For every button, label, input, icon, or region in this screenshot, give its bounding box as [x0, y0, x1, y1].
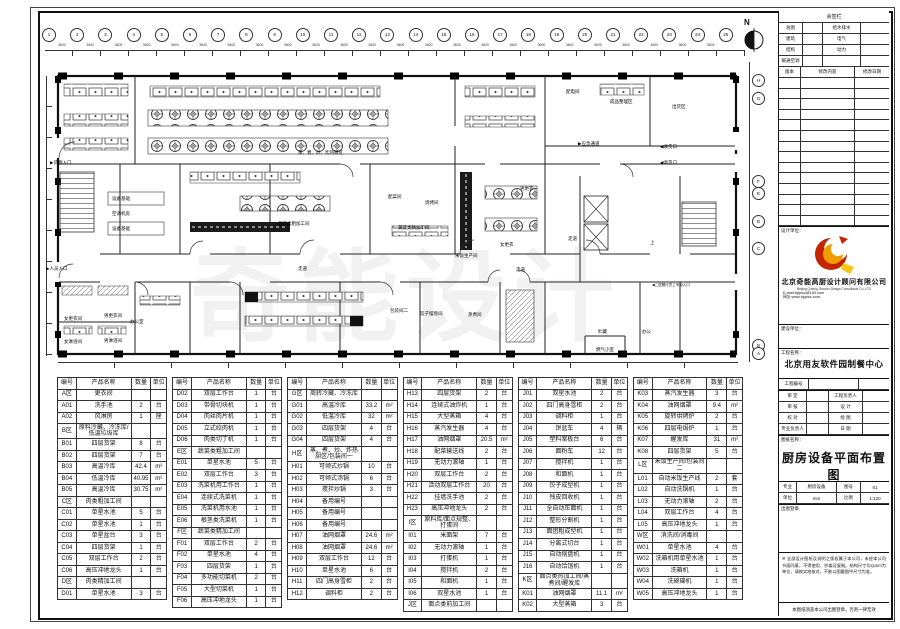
equipment-row: F05大型切菜机1台	[173, 585, 282, 597]
equipment-cell: H21	[403, 481, 422, 493]
drawing-title-label: 图纸名称：	[779, 436, 889, 443]
equipment-cell: 台	[381, 473, 397, 485]
equipment-cell	[151, 424, 167, 439]
equipment-cell: 31	[707, 435, 727, 447]
equipment-cell	[496, 600, 512, 612]
equipment-row: F01双层工作台2台	[173, 539, 282, 551]
room-label: 女更衣	[500, 242, 514, 248]
equipment-row: J15自动摆盘机1台	[518, 550, 627, 562]
equipment-cell: L04	[633, 508, 652, 520]
equipment-row: H03搅拌炒锅3台	[288, 485, 397, 497]
column-header: 产品名称	[652, 378, 707, 390]
equipment-cell: 风淋房	[76, 412, 131, 424]
titleblock-cell	[855, 131, 889, 142]
room-label: 男更衣	[520, 186, 534, 192]
titleblock-cell	[823, 56, 861, 67]
equipment-row: D04肉丝肉片机1台	[173, 412, 282, 424]
signature-rows: 总图给水排水建筑电气结构动力暖通空调	[779, 23, 889, 67]
equipment-cell: 1	[707, 485, 727, 497]
equipment-row: D02双层工作台1台	[173, 389, 282, 401]
equipment-cell: J07	[518, 458, 537, 470]
equipment-cell: 低温冷库	[307, 412, 362, 424]
titleblock-cell	[779, 110, 801, 121]
equipment-cell: 四层货架	[307, 424, 362, 436]
equipment-cell: 1	[592, 539, 612, 551]
equipment-cell: 台	[151, 401, 167, 413]
equipment-cell: E02	[173, 470, 192, 482]
equipment-cell: 多功能切菜机	[191, 573, 246, 585]
room-label: 空调机房	[112, 211, 130, 217]
equipment-cell: 3	[707, 389, 727, 401]
room-label: ▶货物入口	[50, 160, 71, 166]
equipment-row: K01油网烟罩11.1m²	[518, 588, 627, 600]
equipment-cell	[131, 389, 151, 401]
equipment-cell: 1	[592, 516, 612, 528]
equipment-cell: L区	[633, 458, 652, 473]
equipment-cell: 1	[477, 458, 497, 470]
column-header: 编号	[288, 378, 307, 390]
equipment-cell: 蔬菜类粗加工间	[191, 447, 246, 459]
copyright-note: ※ 全部设计图纸及说明之版权属于本公司，未经本公司书面同意，不得使用、抄袭及复制…	[779, 553, 889, 603]
equipment-cell: 台	[727, 577, 743, 589]
equipment-table-2: 编号产品名称数量单位D02双层工作台1台D03带骨切块机1台D04肉丝肉片机1台…	[172, 377, 282, 608]
equipment-cell: 台	[612, 447, 628, 459]
equipment-row: C02单星水池1台	[58, 519, 167, 531]
equipment-cell	[381, 447, 397, 462]
equipment-row: H09双层工作台12台	[288, 554, 397, 566]
titleblock-cell: 版本	[779, 67, 801, 78]
equipment-row: L区米饭生产间/包装间二	[633, 458, 742, 473]
equipment-cell: J14	[518, 539, 537, 551]
room-label: ◀退货口	[660, 160, 677, 166]
equipment-cell: 1	[592, 481, 612, 493]
equipment-cell: 油网烟罩	[307, 531, 362, 543]
equipment-cell: 台	[496, 401, 512, 413]
grid-bubble: E	[752, 187, 765, 200]
titleblock-cell	[863, 424, 889, 435]
equipment-row: E03洗菜机用工作台1台	[173, 481, 282, 493]
grid-bubble: G	[752, 92, 765, 105]
equipment-cell: J08	[518, 470, 537, 482]
equipment-cell: 4	[361, 435, 381, 447]
titleblock-cell: 建筑	[779, 34, 803, 45]
room-label: 男淋浴间	[104, 338, 122, 344]
equipment-row: D05立式绞肉机1台	[173, 424, 282, 436]
titleblock-cell: 动力	[823, 45, 861, 56]
equipment-cell: 台	[496, 565, 512, 577]
validity-note: 本图纸须盖本公司出图登章，否则一律无效	[779, 603, 889, 616]
equipment-row: H10单星水池6台	[288, 565, 397, 577]
equipment-cell: C05	[58, 554, 77, 566]
equipment-cell: H07	[288, 531, 307, 543]
meta-section: 专业厨房设备图号01单位mm比例1:120	[779, 482, 889, 505]
equipment-cell	[246, 447, 266, 459]
equipment-cell: 可倾式炒锅	[307, 462, 362, 474]
equipment-row: I05和面机1台	[403, 577, 512, 589]
equipment-cell: 台	[266, 585, 282, 597]
equipment-cell: 1	[592, 493, 612, 505]
equipment-row: C04四层货架1台	[58, 542, 167, 554]
equipment-row: G03四层货架4台	[288, 424, 397, 436]
equipment-row: E06根茎类洗菜机1台	[173, 516, 282, 528]
equipment-cell: 台	[496, 493, 512, 505]
titleblock-cell	[779, 89, 801, 100]
room-label: 蒸煮间	[468, 312, 482, 318]
room-label: 蔬菜类精加工间	[398, 225, 430, 231]
equipment-cell: 肉类粗加工间	[76, 496, 131, 508]
equipment-cell: 台	[381, 435, 397, 447]
equipment-cell: 双层工作台	[307, 554, 362, 566]
equipment-cell: 无动力滚轴	[422, 458, 477, 470]
equipment-cell: 5	[707, 447, 727, 459]
signature-section: 会签栏 总图给水排水建筑电气结构动力暖通空调 版本修改内容修改日期	[779, 11, 889, 227]
titleblock-row	[779, 205, 889, 216]
equipment-cell: 1	[592, 562, 612, 574]
equipment-row: L02自动洗锅机1台	[633, 485, 742, 497]
equipment-row: W01单星水池4台	[633, 542, 742, 554]
equipment-cell: 高压冲地龙头	[76, 565, 131, 577]
room-label: 男更衣间	[104, 313, 122, 319]
equipment-cell: 台	[381, 554, 397, 566]
equipment-row: D01单星水池3台	[58, 588, 167, 600]
titleblock-row: 暖通空调	[779, 56, 889, 67]
equipment-cell: 配菜输送线	[422, 447, 477, 459]
equipment-cell: 3	[131, 588, 151, 600]
equipment-cell: 面粉车	[537, 447, 592, 459]
titleblock-cell	[779, 142, 801, 153]
equipment-row: E01单星水池5台	[173, 458, 282, 470]
grid-bubble: H	[752, 74, 765, 87]
equipment-cell: H08	[288, 542, 307, 554]
titleblock-cell	[855, 78, 889, 89]
equipment-cell: 1	[246, 401, 266, 413]
equipment-cell: K04	[633, 401, 652, 413]
room-label: 烧烤间	[425, 200, 439, 206]
room-label: 蒸、煮、炒、炸热厨区	[298, 150, 343, 156]
equipment-cell: 单星水池	[652, 542, 707, 554]
titleblock-cell	[801, 184, 855, 195]
column-header: 产品名称	[76, 378, 131, 390]
equipment-cell: 蒸汽发生器	[652, 389, 707, 401]
project-label: 工程名称：	[779, 349, 889, 356]
titleblock-cell	[801, 173, 855, 184]
equipment-cell: 饼盆车	[537, 424, 592, 436]
equipment-row: I02无动力滚轴1台	[403, 542, 512, 554]
equipment-cell: 24.6	[361, 542, 381, 554]
equipment-cell: 台	[496, 531, 512, 543]
equipment-cell	[727, 458, 743, 473]
equipment-cell: 台	[496, 447, 512, 459]
titleblock-row: 版本修改内容修改日期	[779, 67, 889, 78]
equipment-cell: H22	[403, 493, 422, 505]
equipment-cell	[361, 496, 381, 508]
titleblock-cell: 校 对	[779, 413, 807, 424]
equipment-cell: 6	[361, 473, 381, 485]
equipment-cell: B区	[58, 424, 77, 439]
equipment-cell: 大型蒸箱	[537, 600, 592, 612]
equipment-cell: H06	[288, 519, 307, 531]
titleblock-cell: 工程负责人	[829, 391, 863, 402]
equipment-cell: 1	[707, 588, 727, 600]
equipment-cell: E05	[173, 504, 192, 516]
equipment-cell: 油网烟罩	[307, 542, 362, 554]
equipment-cell: J09	[518, 481, 537, 493]
equipment-row: B03高温冷库42.4m²	[58, 462, 167, 474]
equipment-row: I04搅拌机2台	[403, 565, 512, 577]
equipment-table-1: 编号产品名称数量单位A区更衣间A01洗手池2台A02风淋房1座B区原料冷藏、冷冻…	[57, 377, 167, 600]
titleblock-cell: 修改内容	[801, 67, 855, 78]
titleblock-cell	[803, 56, 823, 67]
equipment-cell: 台	[266, 539, 282, 551]
equipment-cell: 高温冷库	[76, 462, 131, 474]
equipment-cell: H23	[403, 504, 422, 516]
titleblock-cell	[861, 23, 889, 34]
equipment-row: K区面点类热加工间/蒸煮间/醒发库	[518, 573, 627, 588]
equipment-cell: J16	[518, 562, 537, 574]
equipment-cell	[381, 519, 397, 531]
equipment-cell: 33.2	[361, 401, 381, 413]
equipment-row: W05高压冲地龙头1台	[633, 588, 742, 600]
titleblock-row: 单位mm比例1:120	[779, 493, 889, 504]
titleblock-cell: 给水排水	[823, 23, 861, 34]
titleblock-row	[779, 131, 889, 142]
north-compass: N	[742, 20, 766, 60]
equipment-cell: 双层工作台	[422, 470, 477, 482]
titleblock-row	[779, 120, 889, 131]
equipment-cell: 台	[727, 565, 743, 577]
column-header: 单位	[727, 378, 743, 390]
equipment-cell: 9.4	[707, 401, 727, 413]
equipment-cell: 12	[361, 554, 381, 566]
equipment-cell: A区	[58, 389, 77, 401]
equipment-cell: 台	[612, 481, 628, 493]
equipment-row: G区周转冷藏、冷冻库	[288, 389, 397, 401]
titleblock-cell: 绘 图	[829, 413, 863, 424]
equipment-cell: 4	[592, 424, 612, 436]
titleblock-cell	[855, 205, 889, 216]
room-label: 贮藏	[598, 329, 607, 335]
equipment-cell: J区	[403, 600, 422, 612]
equipment-cell: C区	[58, 496, 77, 508]
equipment-cell: 台	[727, 485, 743, 497]
equipment-table-4: 编号产品名称数量单位H13四层货架2台H14连续式油炸机1台H15大型蒸箱4台H…	[403, 377, 513, 612]
equipment-cell: 台	[151, 588, 167, 600]
room-label: 设备基础	[112, 226, 130, 232]
equipment-cell: 7	[131, 450, 151, 462]
equipment-cell	[381, 389, 397, 401]
column-header: 产品名称	[307, 378, 362, 390]
equipment-cell: 台	[381, 485, 397, 497]
equipment-cell: 2	[246, 573, 266, 585]
equipment-cell	[727, 531, 743, 543]
equipment-row: B05高温冷库30.75m²	[58, 485, 167, 497]
equipment-cell: 洗碗碟机	[652, 577, 707, 589]
equipment-cell: 40.95	[131, 473, 151, 485]
room-label: 走道	[568, 236, 577, 242]
equipment-cell: L05	[633, 519, 652, 531]
equipment-cell: 1	[246, 504, 266, 516]
room-label: 出货区	[672, 104, 686, 110]
equipment-row: F06高压冲地龙头1台	[173, 596, 282, 608]
column-header: 数量	[477, 378, 497, 390]
titleblock-cell	[863, 402, 889, 413]
titleblock-cell	[809, 379, 859, 390]
titleblock-cell: 暖通空调	[779, 56, 803, 67]
equipment-table-6: 编号产品名称数量单位K03蒸汽发生器3台K04油网烟罩9.4m²K05旋转烘烤炉…	[633, 377, 743, 600]
titleblock-cell: mm	[797, 493, 837, 504]
equipment-cell: I06	[403, 588, 422, 600]
equipment-cell: 高压冲地龙头	[652, 519, 707, 531]
equipment-cell: H12	[288, 588, 307, 600]
titleblock-cell	[801, 131, 855, 142]
equipment-cell: 套	[727, 473, 743, 485]
equipment-cell: 面点类热加工间/蒸煮间/醒发库	[537, 573, 592, 588]
equipment-cell: 台	[266, 573, 282, 585]
equipment-cell	[131, 577, 151, 589]
titleblock-row: 结构动力	[779, 45, 889, 56]
equipment-cell: E03	[173, 481, 192, 493]
equipment-cell: 4	[246, 550, 266, 562]
equipment-cell: D05	[173, 424, 192, 436]
equipment-cell: 台	[496, 588, 512, 600]
equipment-row: F04多功能切菜机2台	[173, 573, 282, 585]
equipment-cell: 四层电焗炉	[652, 424, 707, 436]
equipment-cell: 台	[266, 516, 282, 528]
equipment-cell: L01	[633, 473, 652, 485]
equipment-cell: C01	[58, 508, 77, 520]
room-label: 设备基础	[112, 196, 130, 202]
equipment-cell: I05	[403, 577, 422, 589]
titleblock-cell	[801, 78, 855, 89]
equipment-row: J区面点类前加工间	[403, 600, 512, 612]
titleblock-row	[779, 78, 889, 89]
equipment-cell: 5	[131, 508, 151, 520]
equipment-cell: 2	[592, 389, 612, 401]
equipment-cell: 根茎类洗菜机	[191, 516, 246, 528]
equipment-cell: 1	[477, 401, 497, 413]
equipment-cell: 台	[727, 424, 743, 436]
equipment-cell: 2	[361, 577, 381, 589]
equipment-cell: 台	[266, 435, 282, 447]
titleblock-cell	[807, 424, 829, 435]
room-label: 成品整理区	[610, 99, 633, 105]
equipment-cell: I区	[403, 516, 422, 531]
equipment-cell: A02	[58, 412, 77, 424]
equipment-cell: 四层货架	[307, 435, 362, 447]
titleblock-cell	[779, 78, 801, 89]
titleblock-cell	[779, 216, 801, 227]
project-name: 北京用友软件园制餐中心	[779, 356, 889, 370]
equipment-cell: 调料柜	[537, 412, 592, 424]
equipment-cell: 1	[707, 424, 727, 436]
equipment-row: J11全自动压面机1台	[518, 504, 627, 516]
equipment-cell: W02	[633, 554, 652, 566]
titleblock-cell	[855, 195, 889, 206]
equipment-row: H04备用编号	[288, 496, 397, 508]
equipment-cell: 醒发库	[652, 435, 707, 447]
equipment-cell: 和面机	[537, 470, 592, 482]
equipment-cell: 高温冷库	[307, 401, 362, 413]
titleblock-cell: 比例	[837, 493, 861, 504]
titleblock-cell: 设 计	[829, 402, 863, 413]
equipment-cell: H13	[403, 389, 422, 401]
room-label: 上	[650, 240, 655, 246]
equipment-cell: 搅拌炒锅	[307, 485, 362, 497]
equipment-cell: B04	[58, 473, 77, 485]
project-section: 工程名称： 北京用友软件园制餐中心	[779, 349, 889, 379]
equipment-row: H22挂墙洗手池2台	[403, 493, 512, 505]
column-header: 数量	[707, 378, 727, 390]
equipment-cell: 台	[151, 439, 167, 451]
equipment-cell: 残皮回收机	[537, 493, 592, 505]
equipment-cell: 台	[266, 493, 282, 505]
equipment-cell: 4	[707, 508, 727, 520]
equipment-cell: 调料柜	[307, 588, 362, 600]
equipment-cell: F06	[173, 596, 192, 608]
equipment-cell: G区	[288, 389, 307, 401]
equipment-cell: 2	[707, 496, 727, 508]
equipment-cell: 蒸汽发生器	[422, 424, 477, 436]
equipment-row: B04低温冷库40.95m²	[58, 473, 167, 485]
equipment-cell: 1	[131, 542, 151, 554]
equipment-cell: 台	[496, 542, 512, 554]
titleblock-cell	[855, 163, 889, 174]
equipment-cell: 整形分割机	[537, 516, 592, 528]
equipment-cell: G01	[288, 401, 307, 413]
titleblock-row	[779, 216, 889, 227]
equipment-cell: D04	[173, 412, 192, 424]
equipment-cell: K05	[633, 412, 652, 424]
equipment-cell: 1	[246, 562, 266, 574]
equipment-cell: 台	[266, 550, 282, 562]
equipment-cell: 台	[151, 554, 167, 566]
equipment-cell	[477, 600, 497, 612]
equipment-cell	[361, 508, 381, 520]
equipment-cell: 自动洗锅机	[652, 485, 707, 497]
equipment-cell: 肉丝肉片机	[191, 412, 246, 424]
titleblock-cell	[803, 34, 823, 45]
equipment-cell: 1	[592, 412, 612, 424]
equipment-row: K05旋转烘烤炉2台	[633, 412, 742, 424]
equipment-row: H21活动双层工作台20台	[403, 481, 512, 493]
approval-section: 审 定工程负责人审 核设 计校 对绘 图专业负责人日 期	[779, 391, 889, 436]
room-label: 配电间	[566, 89, 580, 95]
equipment-cell: 台	[266, 389, 282, 401]
equipment-row: B区原料冷藏、冷冻库/低温垃圾库	[58, 424, 167, 439]
equipment-cell: 1	[707, 519, 727, 531]
equipment-cell: 20.5	[477, 435, 497, 447]
equipment-row: H17油网烟罩20.5m²	[403, 435, 512, 447]
equipment-cell: 备用编号	[307, 519, 362, 531]
equipment-cell: 台	[612, 435, 628, 447]
equipment-row: J10残皮回收机1台	[518, 493, 627, 505]
room-label: ▶人员入口	[46, 266, 67, 272]
equipment-cell: H09	[288, 554, 307, 566]
equipment-cell: C03	[58, 531, 77, 543]
equipment-row: K06四层电焗炉1台	[633, 424, 742, 436]
column-header: 编号	[58, 378, 77, 390]
equipment-row: C03单星盆台3台	[58, 531, 167, 543]
equipment-row: K08四层货架5台	[633, 447, 742, 459]
room-label: 蔬菜类粗加工间	[278, 221, 310, 227]
column-header: 单位	[496, 378, 512, 390]
equipment-row: H区蒸、煮、炒、炸热厨区/包装间一	[288, 447, 397, 462]
titleblock-row	[779, 173, 889, 184]
equipment-cell	[266, 447, 282, 459]
titleblock-cell: 审 定	[779, 391, 807, 402]
equipment-cell: 台	[266, 458, 282, 470]
equipment-cell: 台	[496, 424, 512, 436]
